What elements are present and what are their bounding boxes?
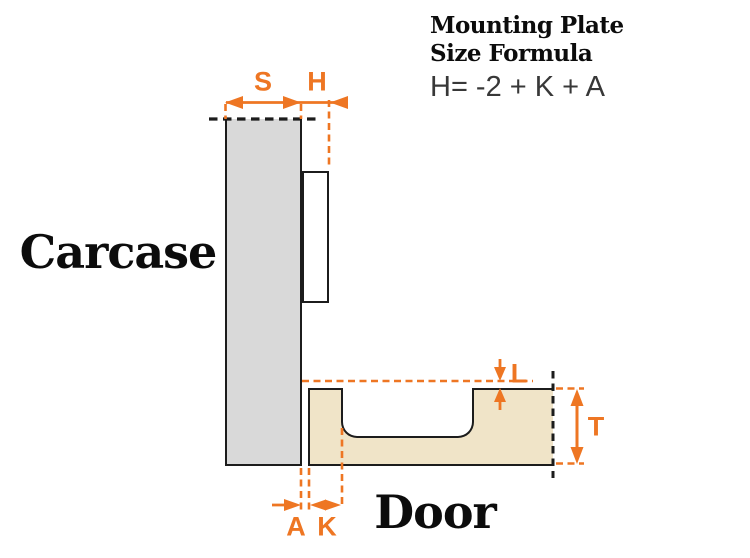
formula-text: H= -2 + K + A — [430, 70, 624, 104]
dimension-label-a: A — [286, 512, 306, 543]
dimension-label-t: T — [588, 412, 605, 443]
dimension-label-h: H — [307, 67, 327, 98]
formula-title-line2: Size Formula — [430, 40, 624, 68]
dimension-lines-overlay — [0, 0, 750, 558]
hinge-cup-shape — [341, 388, 474, 438]
mounting-plate-shape — [302, 171, 329, 303]
hinge-mounting-diagram: S H L T A K Carcase Door Mounting Plate … — [0, 0, 750, 558]
dimension-arrow-a — [272, 499, 301, 511]
door-label: Door — [374, 485, 496, 539]
dimension-arrow-s-h — [225, 96, 348, 109]
carcase-label: Carcase — [20, 225, 217, 279]
dimension-label-l: L — [511, 359, 528, 390]
dimension-label-k: K — [317, 512, 337, 543]
formula-block: Mounting Plate Size Formula H= -2 + K + … — [430, 12, 624, 104]
carcase-panel-shape — [225, 119, 302, 466]
formula-title-line1: Mounting Plate — [430, 12, 624, 40]
dimension-arrow-k — [310, 500, 341, 511]
dimension-arrow-t — [571, 389, 584, 464]
dimension-label-s: S — [254, 67, 272, 98]
